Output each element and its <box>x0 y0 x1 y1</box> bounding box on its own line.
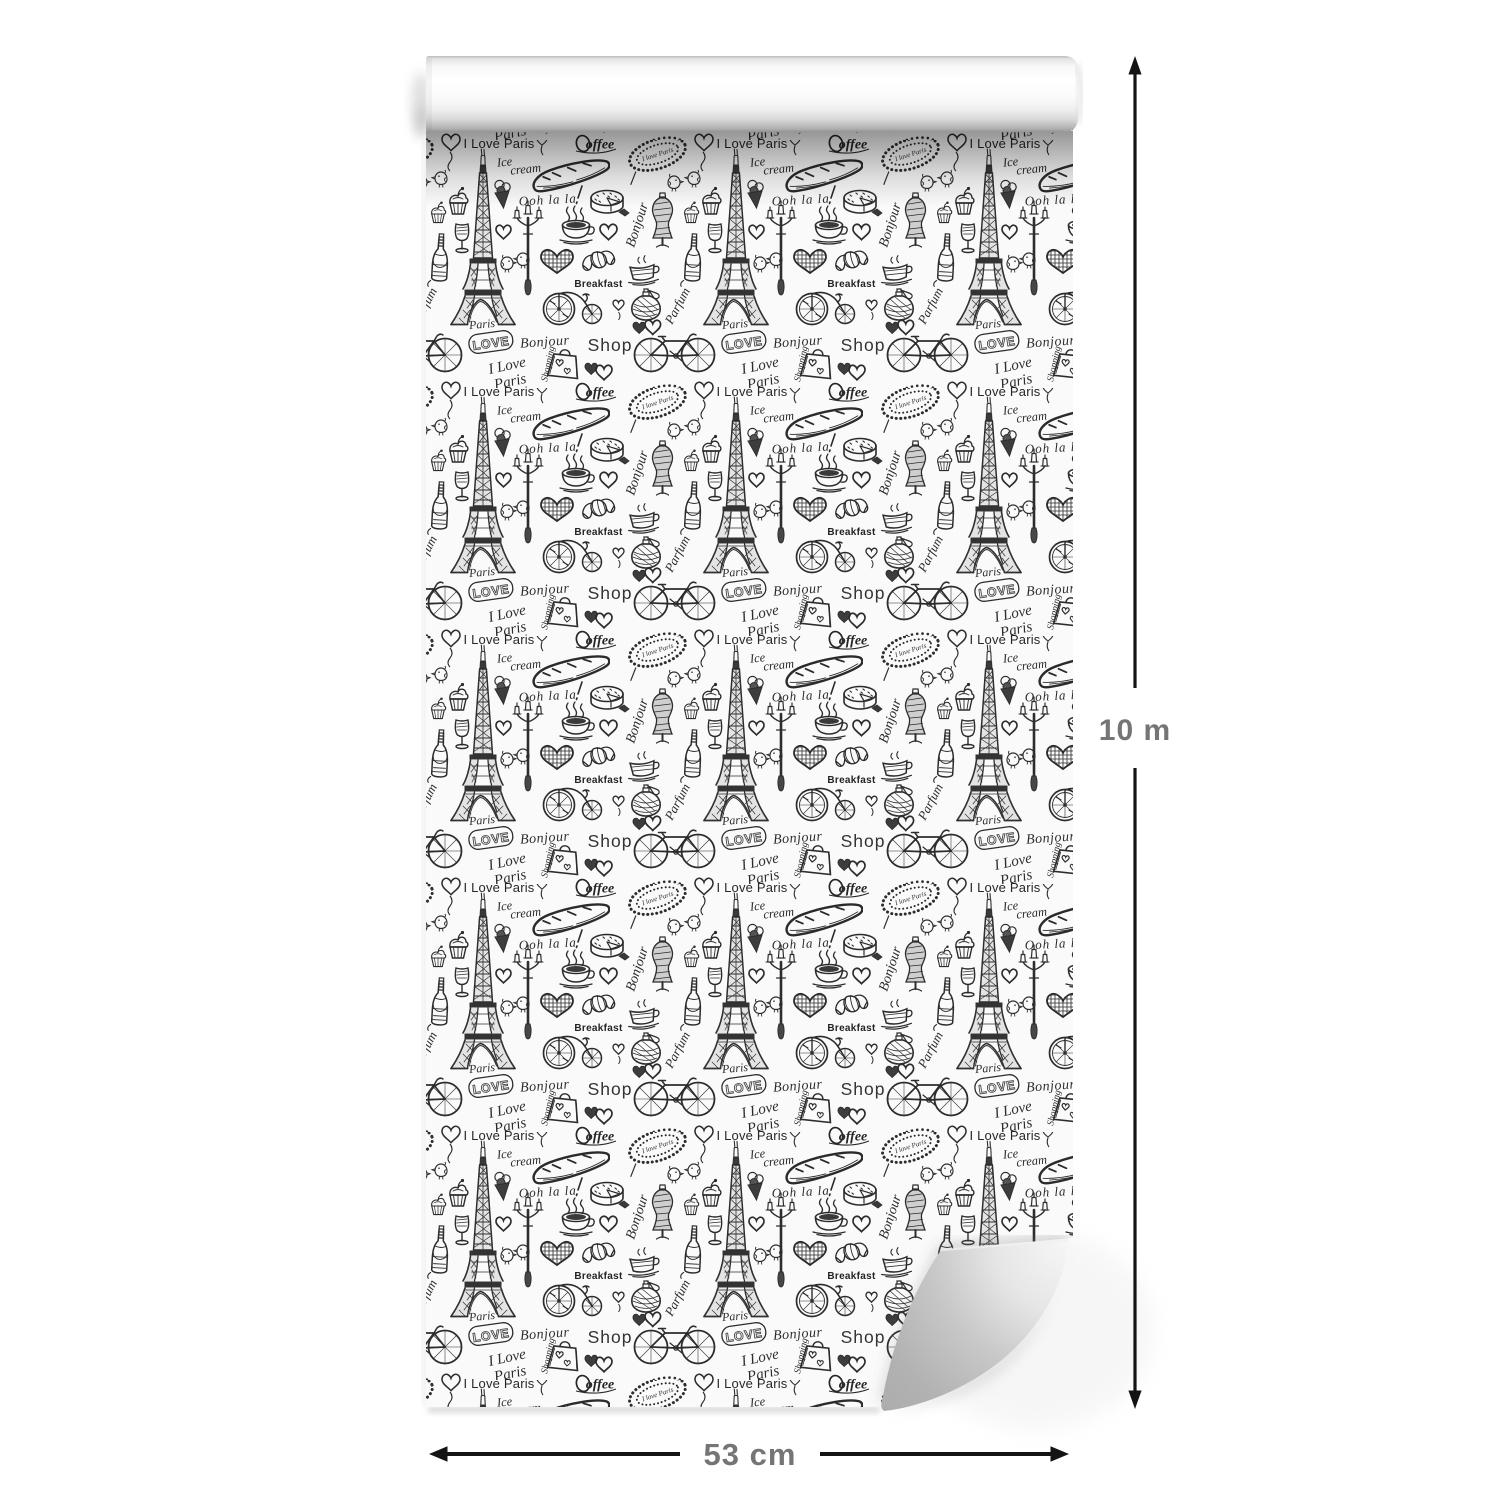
svg-text:53 cm: 53 cm <box>704 1437 797 1472</box>
svg-text:10 m: 10 m <box>1099 714 1171 747</box>
